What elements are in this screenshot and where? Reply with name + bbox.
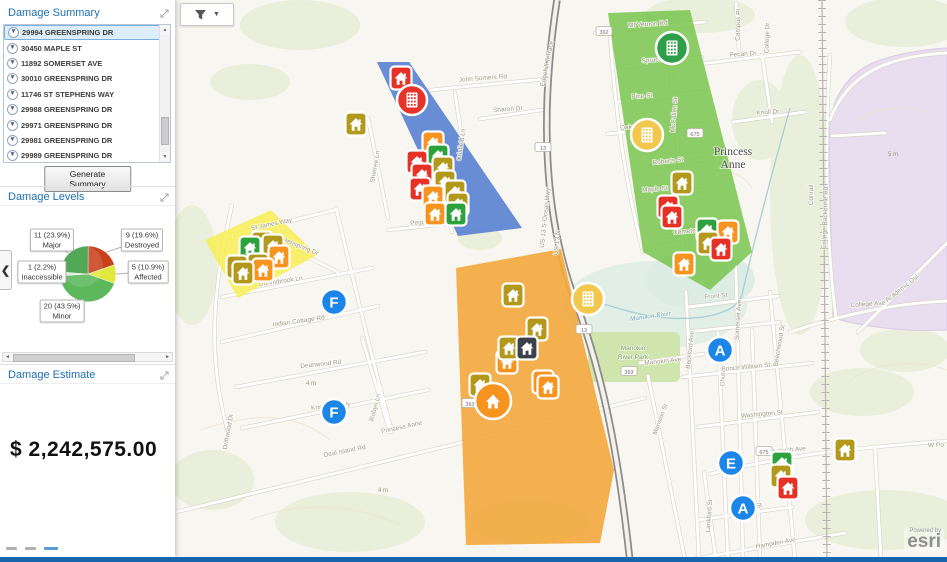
- filter-button[interactable]: ▼: [180, 3, 234, 26]
- pie-callout-affected: 5 (10.9%)Affected: [128, 261, 169, 284]
- street-label: College Dr: [763, 22, 771, 54]
- chevron-down-icon[interactable]: ▼: [7, 43, 18, 54]
- damage-summary-title: Damage Summary: [8, 7, 160, 19]
- street-label: Conrail: [808, 184, 815, 205]
- expand-icon[interactable]: [160, 193, 169, 202]
- chevron-down-icon[interactable]: ▼: [7, 73, 18, 84]
- street-label: Somerset Ave: [734, 299, 744, 340]
- svg-text:13: 13: [581, 328, 587, 334]
- svg-text:F: F: [329, 295, 338, 312]
- incident-marker-F[interactable]: F: [321, 399, 347, 425]
- damage-estimate-header: Damage Estimate: [0, 364, 175, 384]
- damage-estimate-title: Damage Estimate: [8, 369, 160, 381]
- vertical-scrollbar[interactable]: ▲ ▼: [159, 25, 170, 162]
- house-marker-affected[interactable]: [503, 284, 524, 307]
- scroll-up-button[interactable]: ▲: [160, 25, 170, 35]
- damage-summary-header: Damage Summary: [0, 2, 175, 22]
- chevron-down-icon[interactable]: ▼: [7, 104, 18, 115]
- svg-text:363: 363: [624, 370, 633, 376]
- damage-levels-title: Damage Levels: [8, 191, 160, 203]
- address-list-item[interactable]: ▼11746 ST STEPHENS WAY: [4, 87, 170, 102]
- elevation-label: 5 m: [888, 152, 898, 158]
- elevation-label: 4 m: [306, 381, 316, 387]
- house-marker-destroyed[interactable]: [711, 238, 732, 261]
- address-list-item[interactable]: ▼29981 GREENSPRING DR: [4, 133, 170, 148]
- svg-text:675: 675: [759, 450, 768, 456]
- pager-dash[interactable]: [6, 547, 17, 550]
- incident-marker-E[interactable]: E: [718, 450, 744, 476]
- house-marker-major[interactable]: [674, 253, 695, 276]
- address-list[interactable]: ▼29994 GREENSPRING DR▼30450 MAPLE ST▼118…: [3, 24, 171, 163]
- house-marker-major[interactable]: [538, 376, 559, 399]
- scroll-left-button[interactable]: ◄: [3, 353, 12, 361]
- address-label: 29988 GREENSPRING DR: [21, 105, 112, 114]
- expand-icon[interactable]: [160, 371, 169, 380]
- pie-callout-destroyed: 9 (19.6%)Destroyed: [121, 229, 163, 252]
- address-list-item[interactable]: ▼30450 MAPLE ST: [4, 40, 170, 55]
- house-marker-destroyed[interactable]: [778, 477, 799, 500]
- chevron-down-icon: ▼: [213, 11, 220, 18]
- address-label: 29994 GREENSPRING DR: [22, 28, 113, 37]
- panel-pager[interactable]: [6, 547, 58, 550]
- pager-dash[interactable]: [25, 547, 36, 550]
- svg-text:362: 362: [599, 30, 608, 36]
- svg-text:E: E: [726, 456, 736, 473]
- pie-callout-inaccessible: 1 (2.2%)Inaccessible: [17, 261, 66, 284]
- cluster-marker[interactable]: [397, 85, 427, 115]
- street-label: Deal Island Rd: [323, 444, 367, 459]
- house-marker-affected[interactable]: [672, 172, 693, 195]
- address-label: 11892 SOMERSET AVE: [21, 59, 102, 68]
- house-marker-destroyed[interactable]: [662, 206, 683, 229]
- sidebar: Damage Summary ▼29994 GREENSPRING DR▼304…: [0, 0, 175, 557]
- pie-callout-minor: 20 (43.5%)Minor: [40, 300, 85, 323]
- damage-levels-header: Damage Levels: [0, 186, 175, 206]
- damage-levels-chart: 9 (19.6%)Destroyed5 (10.9%)Affected20 (4…: [0, 208, 175, 348]
- street-label: Pine St: [631, 92, 653, 100]
- bottom-accent-bar: [0, 557, 947, 562]
- address-list-item[interactable]: ▼29989 GREENSPRING DR: [4, 148, 170, 163]
- chevron-down-icon[interactable]: ▼: [8, 27, 19, 38]
- address-label: 29989 GREENSPRING DR: [21, 151, 112, 160]
- basemap[interactable]: 3621313363675675363John Somers RdSharon …: [175, 0, 947, 557]
- svg-text:363: 363: [465, 402, 474, 408]
- cluster-marker[interactable]: [631, 119, 663, 151]
- svg-text:13: 13: [540, 146, 546, 152]
- address-list-item[interactable]: ▼29994 GREENSPRING DR: [4, 25, 170, 40]
- incident-marker-F[interactable]: F: [321, 289, 347, 315]
- scrollbar-thumb[interactable]: [13, 354, 135, 362]
- svg-text:A: A: [738, 501, 749, 518]
- pie-callout-major: 11 (23.9%)Major: [30, 229, 74, 252]
- cluster-marker[interactable]: [572, 283, 604, 315]
- house-marker-minor[interactable]: [446, 203, 467, 226]
- address-list-item[interactable]: ▼29971 GREENSPRING DR: [4, 117, 170, 132]
- scroll-right-button[interactable]: ►: [163, 353, 172, 361]
- pager-dash-active[interactable]: [44, 547, 58, 550]
- esri-logo: esri: [907, 531, 941, 552]
- address-list-item[interactable]: ▼29988 GREENSPRING DR: [4, 102, 170, 117]
- expand-icon[interactable]: [160, 9, 169, 18]
- address-list-item[interactable]: ▼30010 GREENSPRING DR: [4, 71, 170, 86]
- street-label: W Po: [928, 442, 945, 450]
- street-label: Edgehill Terrace: [539, 40, 556, 87]
- house-marker-affected[interactable]: [233, 262, 254, 285]
- house-marker-affected[interactable]: [835, 439, 856, 462]
- address-label: 29981 GREENSPRING DR: [21, 136, 112, 145]
- scroll-down-button[interactable]: ▼: [160, 152, 170, 162]
- house-marker-affected[interactable]: [346, 113, 367, 136]
- address-label: 30450 MAPLE ST: [21, 44, 82, 53]
- elevation-label: 4 m: [378, 488, 388, 494]
- chevron-down-icon[interactable]: ▼: [7, 150, 18, 161]
- house-marker-major[interactable]: [253, 259, 274, 282]
- street-label: Campus Pl: [734, 8, 742, 41]
- damage-estimate-value: $ 2,242,575.00: [10, 438, 157, 462]
- address-list-item[interactable]: ▼11892 SOMERSET AVE: [4, 56, 170, 71]
- filter-icon: [194, 9, 207, 21]
- horizontal-scrollbar[interactable]: ◄ ►: [2, 352, 173, 362]
- address-label: 29971 GREENSPRING DR: [21, 121, 112, 130]
- street-label: Indian Cottage Rd: [272, 314, 325, 328]
- incident-marker-A[interactable]: A: [730, 495, 756, 521]
- sidebar-collapse-button[interactable]: ❮: [0, 250, 12, 290]
- map-attribution: Powered by esri: [904, 528, 944, 551]
- svg-text:A: A: [715, 343, 726, 360]
- map-canvas[interactable]: 3621313363675675363John Somers RdSharon …: [175, 0, 947, 557]
- house-marker-major[interactable]: [425, 203, 446, 226]
- chevron-down-icon[interactable]: ▼: [7, 58, 18, 69]
- town-label: PrincessAnne: [714, 146, 753, 171]
- svg-text:F: F: [329, 405, 338, 422]
- address-label: 11746 ST STEPHENS WAY: [21, 90, 114, 99]
- chevron-down-icon[interactable]: ▼: [7, 89, 18, 100]
- incident-marker-A[interactable]: A: [707, 337, 733, 363]
- chevron-down-icon[interactable]: ▼: [7, 135, 18, 146]
- cluster-marker[interactable]: [656, 32, 688, 64]
- house-marker-inaccessible[interactable]: [517, 337, 538, 360]
- scrollbar-thumb[interactable]: [161, 117, 169, 145]
- svg-text:675: 675: [690, 132, 699, 138]
- cluster-marker[interactable]: [475, 383, 511, 419]
- chevron-down-icon[interactable]: ▼: [7, 120, 18, 131]
- address-label: 30010 GREENSPRING DR: [21, 74, 112, 83]
